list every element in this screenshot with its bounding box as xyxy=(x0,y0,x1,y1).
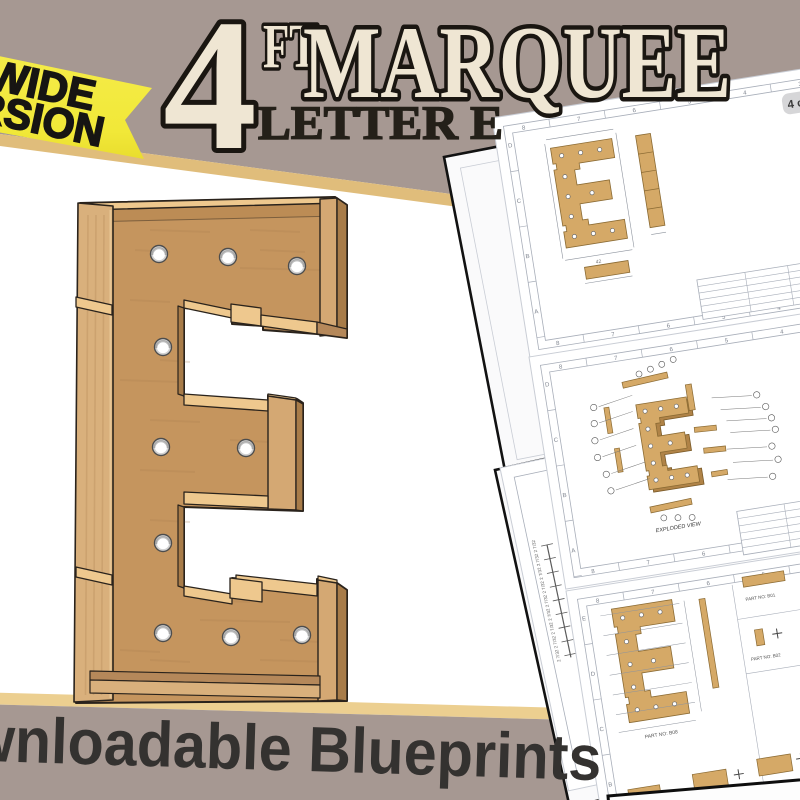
svg-text:LETTER E: LETTER E xyxy=(258,97,503,150)
svg-text:4: 4 xyxy=(163,0,257,189)
